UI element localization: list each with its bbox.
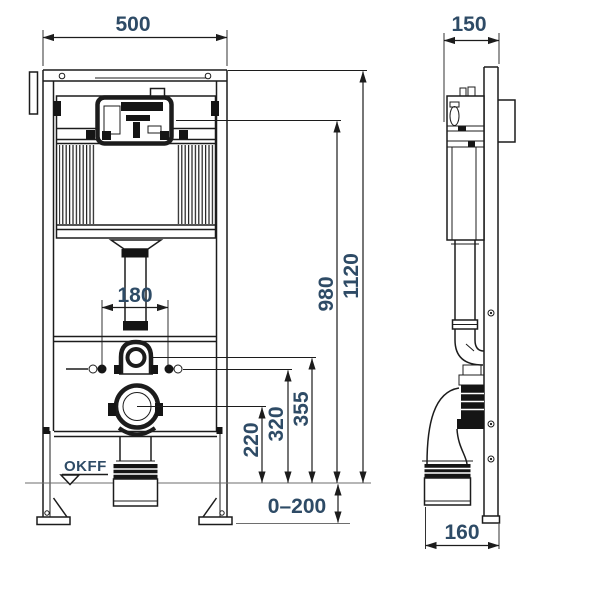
dim-outlet-160: 160 <box>426 507 500 549</box>
drain-connector <box>457 385 484 429</box>
dim-depth-label: 150 <box>451 13 486 36</box>
dim-supply-320: 320 <box>265 371 288 483</box>
dim-outlet-label: 160 <box>444 521 479 544</box>
dim-drain-220: 220 <box>240 408 263 483</box>
screw-hole <box>59 73 65 79</box>
dim-actuator-label: 980 <box>315 276 338 311</box>
rail-foot <box>483 516 500 523</box>
hatch-right <box>177 145 214 224</box>
dim-fixing-label: 180 <box>117 284 152 307</box>
drain-socket-front <box>114 437 158 507</box>
flush-pipe-side <box>451 240 484 385</box>
screw-hole <box>205 73 211 79</box>
technical-drawing: OKFF 500 180 220 320 <box>0 0 600 600</box>
wall-bracket-tab <box>30 72 38 114</box>
dim-flush-label: 355 <box>290 391 313 426</box>
cistern <box>53 89 219 239</box>
dim-width-500: 500 <box>43 13 227 66</box>
bowl-fixing-bolts <box>66 365 292 374</box>
floor-level-marker: OKFF <box>61 458 108 485</box>
dim-drain-label: 220 <box>240 422 263 457</box>
cistern-side <box>447 87 484 240</box>
hatch-left <box>59 145 96 224</box>
wall-rail <box>483 67 516 523</box>
dim-supply-label: 320 <box>265 406 288 441</box>
side-view: 150 160 <box>422 13 515 549</box>
dim-width-label: 500 <box>115 13 150 36</box>
dim-frame-label: 1120 <box>340 253 363 299</box>
okff-label: OKFF <box>64 458 107 475</box>
flush-bend <box>114 342 158 374</box>
dim-flush-355: 355 <box>152 358 316 483</box>
front-view: OKFF 500 180 220 320 <box>25 13 371 525</box>
dim-adjust-label: 0–200 <box>268 495 326 518</box>
wall-bracket <box>498 100 515 142</box>
dim-adjust-0-200: 0–200 <box>236 485 350 524</box>
